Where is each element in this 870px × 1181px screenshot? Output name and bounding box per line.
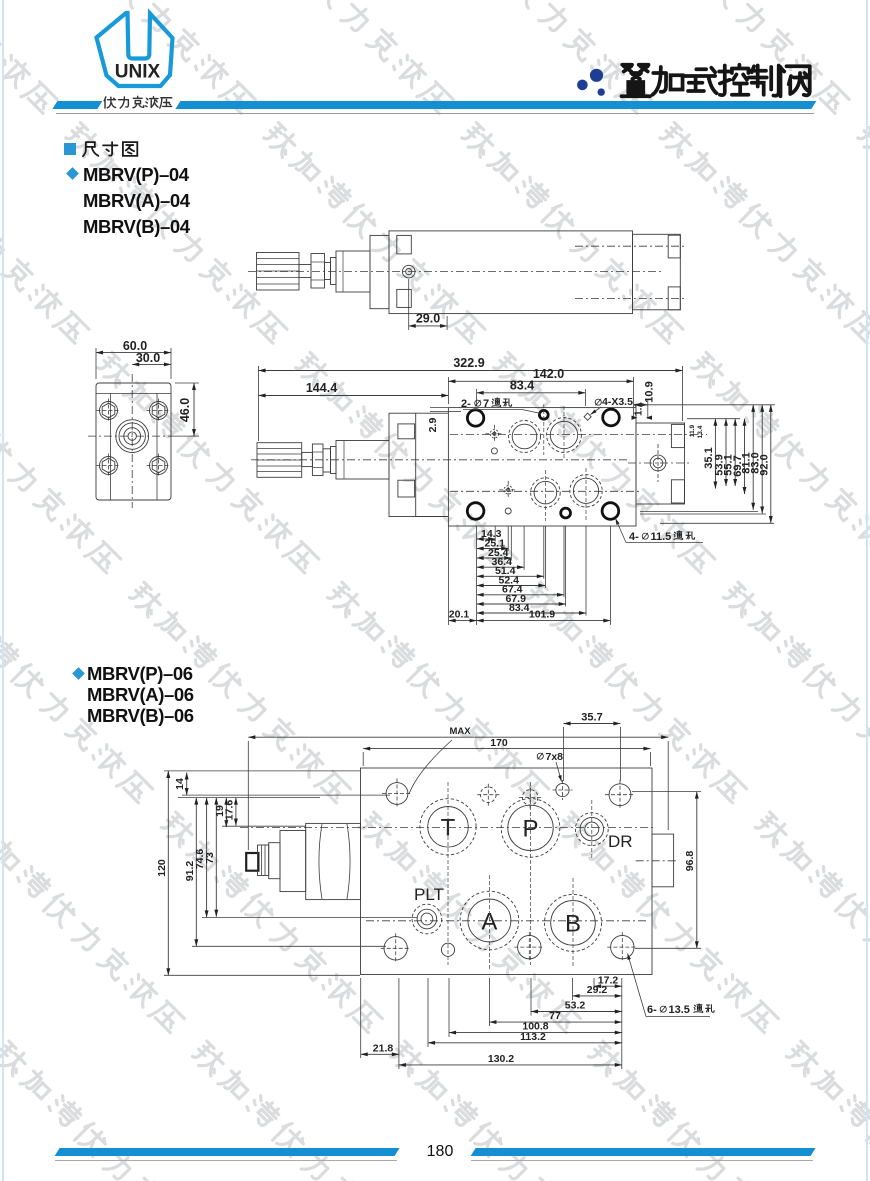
svg-text:29.0: 29.0 [416, 312, 440, 326]
svg-text:PLT: PLT [414, 885, 444, 904]
svg-text:83.4: 83.4 [509, 602, 530, 614]
svg-text:83.4: 83.4 [510, 379, 534, 393]
svg-text:113.2: 113.2 [520, 1031, 546, 1043]
svg-text:21.8: 21.8 [373, 1042, 394, 1054]
svg-text:11.5: 11.5 [651, 531, 672, 543]
svg-text:322.9: 322.9 [453, 356, 484, 370]
svg-text:4-: 4- [629, 531, 639, 543]
svg-text:1.1: 1.1 [634, 402, 645, 416]
svg-text:96.8: 96.8 [684, 851, 696, 872]
svg-text:17.6: 17.6 [223, 800, 235, 821]
svg-text:7x8: 7x8 [546, 751, 564, 763]
svg-text:29.2: 29.2 [587, 984, 608, 996]
svg-text:14: 14 [174, 778, 186, 790]
svg-text:92.0: 92.0 [758, 454, 770, 475]
svg-text:73: 73 [204, 852, 216, 864]
svg-text:46.0: 46.0 [178, 398, 192, 422]
svg-text:6-: 6- [647, 1004, 657, 1016]
svg-text:4-X3.5: 4-X3.5 [602, 396, 633, 408]
svg-text:53.2: 53.2 [565, 1000, 586, 1012]
svg-text:101.9: 101.9 [529, 609, 555, 621]
svg-text:DR: DR [608, 832, 633, 851]
svg-text:2-: 2- [461, 398, 471, 410]
svg-text:120: 120 [156, 859, 168, 877]
svg-text:144.4: 144.4 [306, 381, 337, 395]
svg-text:170: 170 [490, 737, 508, 749]
svg-text:10.9: 10.9 [644, 381, 656, 402]
svg-text:130.2: 130.2 [488, 1053, 514, 1065]
svg-text:2.9: 2.9 [427, 418, 439, 433]
svg-text:142.0: 142.0 [533, 367, 564, 381]
svg-text:13.4: 13.4 [697, 425, 704, 438]
svg-text:77: 77 [549, 1010, 561, 1022]
svg-text:35.7: 35.7 [581, 712, 602, 724]
svg-text:7: 7 [483, 398, 489, 410]
svg-text:11.9: 11.9 [689, 424, 696, 437]
svg-text:MAX: MAX [449, 726, 471, 737]
svg-text:20.1: 20.1 [449, 609, 470, 621]
svg-text:30.0: 30.0 [136, 351, 160, 365]
svg-text:13.5: 13.5 [669, 1004, 690, 1016]
